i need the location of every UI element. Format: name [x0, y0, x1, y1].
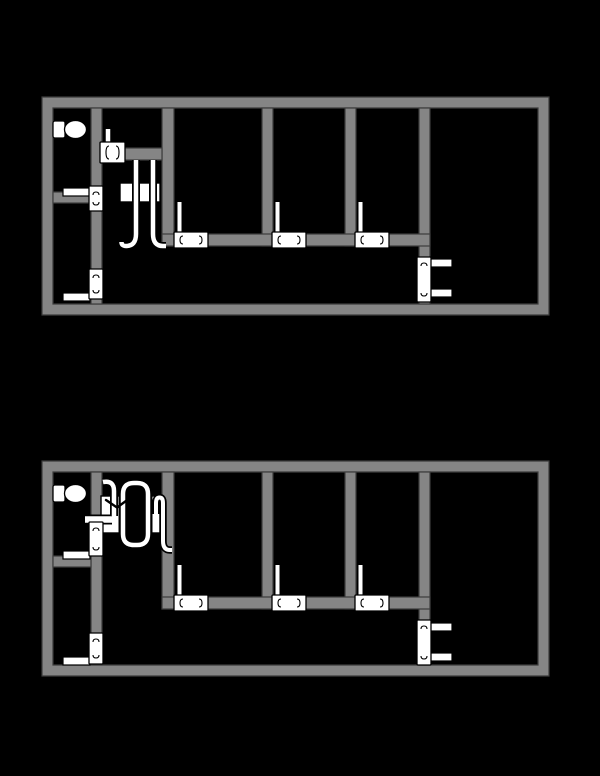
partition-wall-2: [262, 108, 273, 246]
toilet-tank: [53, 485, 65, 502]
exterior-wall: [42, 97, 549, 315]
lower-room-baseboard: [63, 657, 90, 665]
corridor-radiator-1-body: [174, 232, 208, 248]
right-room-stub-upper: [430, 623, 452, 631]
corridor-radiator-1-body: [174, 595, 208, 611]
right-room-radiator-body: [417, 257, 431, 302]
right-room-stub-lower: [430, 653, 452, 661]
doorway-lower-body: [89, 269, 103, 299]
toilet-tank: [53, 121, 65, 138]
corridor-radiator-2-body: [272, 232, 306, 248]
toilet-bowl: [65, 121, 87, 139]
doorway-upper-body: [89, 186, 103, 211]
corridor-radiator-2: [272, 595, 306, 611]
corridor-radiator-3: [355, 232, 389, 248]
corridor-radiator-1: [174, 232, 208, 248]
bathroom-baseboard: [63, 188, 90, 196]
exterior-wall: [42, 461, 549, 676]
doorway-lower: [89, 633, 103, 664]
right-room-radiator: [417, 620, 431, 665]
doorway-lower-body: [89, 633, 103, 664]
corridor-radiator-2: [272, 232, 306, 248]
corridor-radiator-1: [174, 595, 208, 611]
toilet-fixture: [53, 121, 87, 139]
partition-wall-2: [262, 472, 273, 609]
diagram-canvas: [0, 0, 600, 776]
right-room-radiator: [417, 257, 431, 302]
doorway-upper-body: [89, 522, 103, 556]
corridor-radiator-3: [355, 595, 389, 611]
corridor-radiator-2-body: [272, 595, 306, 611]
doorway-upper: [89, 522, 103, 556]
branch-inlet-fixture-body: [100, 142, 125, 163]
figure-stage: [0, 0, 600, 776]
boiler-loop-outline: [123, 483, 148, 545]
bathroom-baseboard: [63, 551, 90, 559]
doorway-lower: [89, 269, 103, 299]
toilet-bowl: [65, 485, 87, 503]
corridor-radiator-3-body: [355, 232, 389, 248]
supply-pipe: [122, 160, 137, 246]
partition-wall-3: [345, 472, 356, 609]
floor-plan-top: [42, 97, 549, 315]
right-room-stub-upper: [430, 259, 452, 267]
right-room-stub-lower: [430, 289, 452, 297]
toilet-fixture: [53, 485, 87, 503]
branch-inlet-fixture: [100, 142, 125, 163]
partition-wall-3: [345, 108, 356, 246]
doorway-upper: [89, 186, 103, 211]
partition-wall-1: [162, 108, 174, 246]
floor-plan-bottom: [42, 461, 549, 676]
lower-room-baseboard: [63, 293, 90, 301]
corridor-radiator-3-body: [355, 595, 389, 611]
right-room-radiator-body: [417, 620, 431, 665]
